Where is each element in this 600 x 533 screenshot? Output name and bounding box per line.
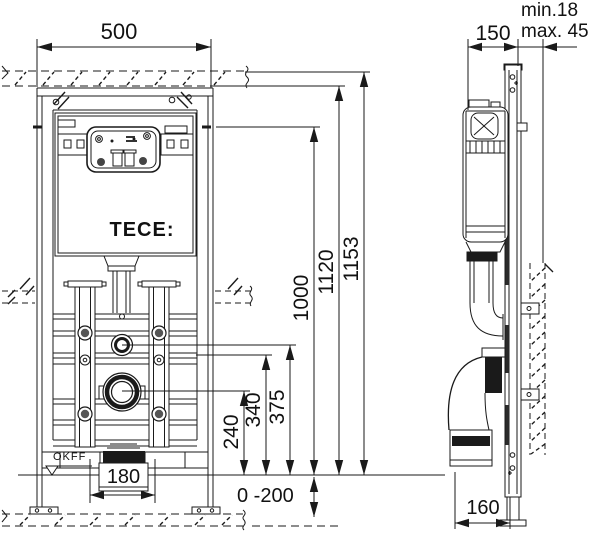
drain-connection — [99, 373, 145, 411]
drawing-linework — [0, 0, 600, 533]
side-view — [448, 64, 553, 526]
flush-pipe-side — [467, 252, 503, 340]
dim-wall-min: min.18 — [521, 1, 578, 20]
ceiling-hatch-band — [2, 66, 249, 88]
dim-total-height-1153: 1153 — [341, 229, 363, 289]
dim-width-500: 500 — [88, 21, 150, 43]
dim-flush-width-180: 180 — [99, 467, 148, 487]
flush-pipe-front — [104, 256, 139, 313]
drain-bend-side — [448, 348, 505, 466]
mid-wall-band — [2, 278, 252, 306]
wall-hatch-strip — [530, 263, 553, 455]
dim-rail-height-340: 340 — [243, 387, 265, 433]
floor-level-label: OKFF — [53, 452, 86, 463]
dim-wall-max: max. 45 — [521, 22, 589, 41]
brand-logo: TECE: — [108, 220, 176, 240]
dim-frame-height-1120: 1120 — [316, 242, 338, 302]
cistern-side — [463, 100, 508, 252]
dim-floor-range: 0 -200 — [237, 486, 294, 506]
okff-floor-line — [18, 466, 445, 475]
dim-drain-height-240: 240 — [221, 409, 243, 455]
dim-height-1000: 1000 — [291, 268, 313, 328]
dim-depth-150: 150 — [464, 23, 522, 44]
technical-drawing: 500 150 min.18 max. 45 TECE: 1153 1120 1… — [0, 0, 600, 533]
dim-supply-height-375: 375 — [267, 384, 289, 430]
dim-drain-offset-160: 160 — [456, 498, 510, 518]
